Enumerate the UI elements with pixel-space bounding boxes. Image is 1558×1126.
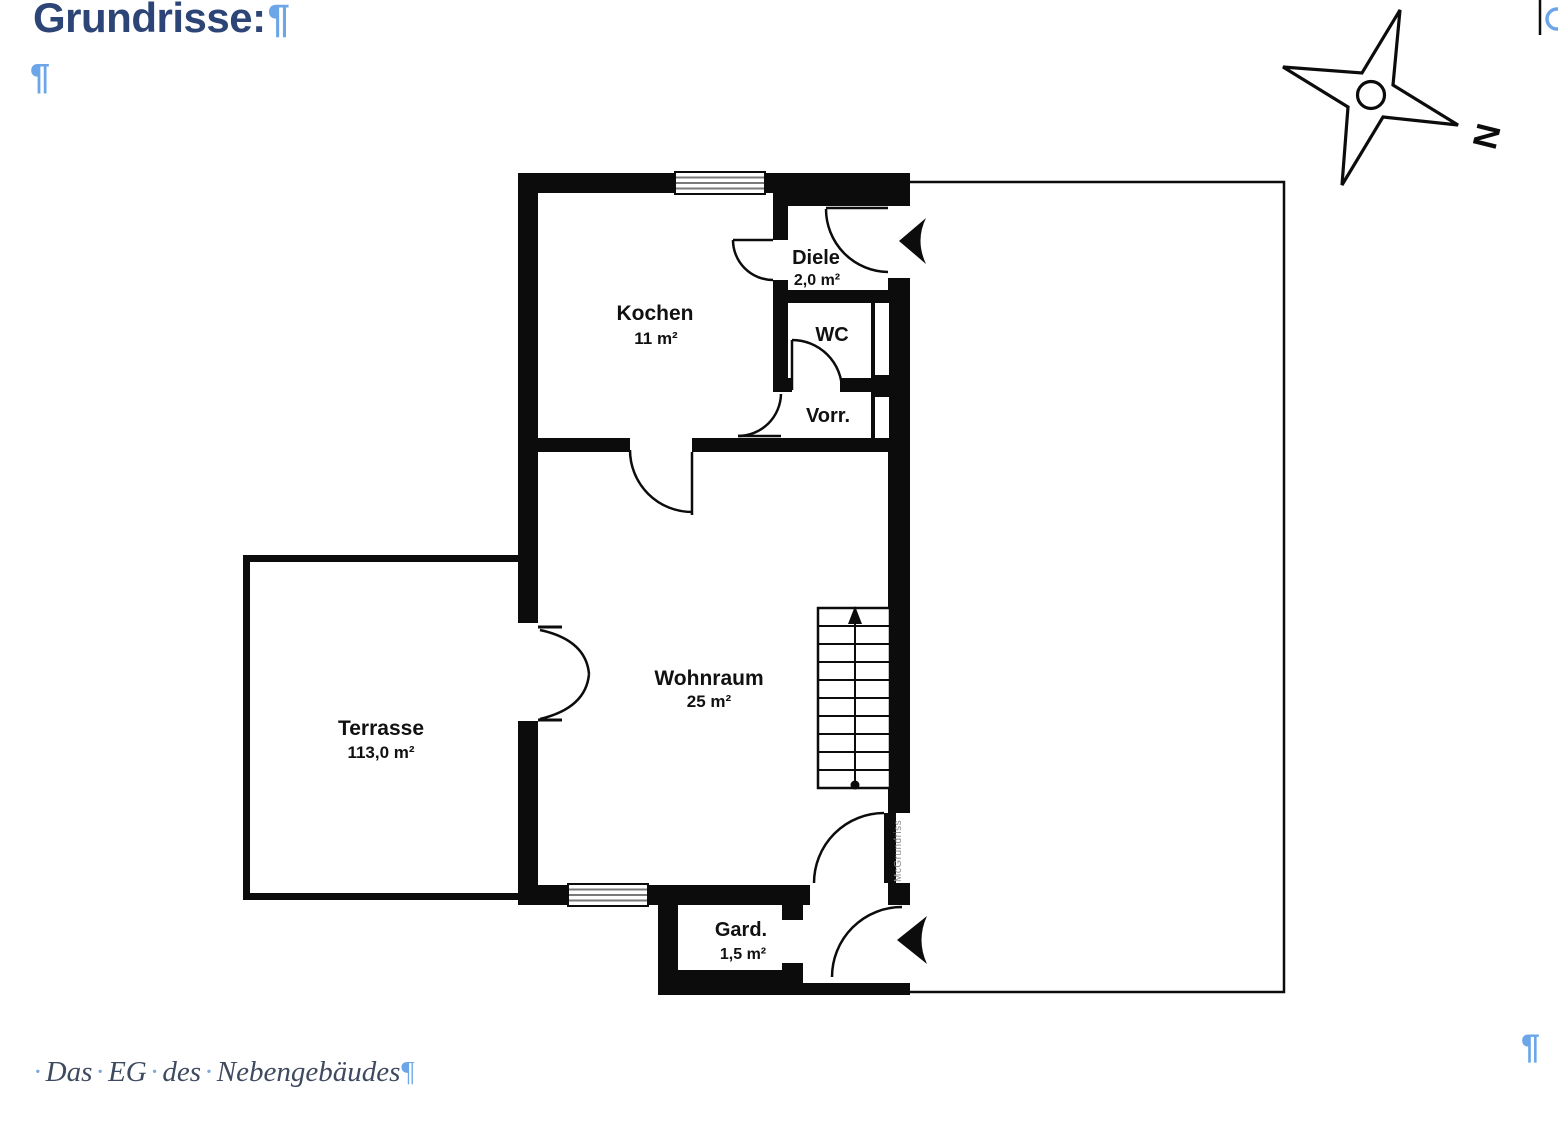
stairs-walk-start-dot <box>851 781 860 790</box>
entry-door-hall-arc <box>814 813 884 883</box>
wall-gard-right-top <box>782 905 803 920</box>
figure-caption: ·Das·EG·des·Nebengebäudes¶ <box>30 1056 415 1089</box>
wall-top-left <box>518 173 675 193</box>
floor-plan-figure: McGrundriss Kochen 11 m² Diele 2,0 m² WC… <box>0 0 1558 1126</box>
entrance-arrow-top <box>899 218 926 264</box>
entrance-arrow-bottom <box>897 916 927 964</box>
shaft-niche-vorr <box>875 397 889 438</box>
caption-word: des <box>162 1056 201 1088</box>
wall-diele-top-band <box>773 192 888 206</box>
entry-door-porch-arc <box>832 907 902 977</box>
shaft-niche-wc <box>875 303 889 375</box>
vorr-door-arc <box>738 394 781 436</box>
wall-gard-right-bottom <box>782 963 803 988</box>
wall-left-upper <box>518 173 538 623</box>
room-area-gard: 1,5 m² <box>720 946 766 963</box>
text-cursor-mark <box>1540 0 1558 35</box>
wall-right-stub <box>888 883 910 905</box>
room-label-terrasse: Terrasse <box>338 717 424 740</box>
caption-word: Das <box>46 1056 93 1088</box>
space-dot-mark: · <box>92 1056 108 1088</box>
room-area-diele: 2,0 m² <box>794 272 840 289</box>
document-page: Grundrisse: ¶ ¶ <box>0 0 1558 1126</box>
pilcrow-mark: ¶ <box>400 1056 414 1088</box>
room-area-wohnraum: 25 m² <box>687 692 732 711</box>
wall-wc-bottom-left <box>773 378 792 392</box>
wall-gard-bottom <box>658 970 803 983</box>
compass-rose-icon: N <box>1283 10 1507 185</box>
caption-word: Nebengebäudes <box>217 1056 401 1088</box>
wall-right-main <box>888 278 910 813</box>
space-dot-mark: · <box>147 1056 163 1088</box>
walls <box>518 173 910 995</box>
wall-wc-left <box>773 303 788 378</box>
room-label-gard: Gard. <box>715 919 767 941</box>
room-label-wohnraum: Wohnraum <box>654 667 763 690</box>
caption-word: EG <box>108 1056 147 1088</box>
plan-watermark: McGrundriss <box>893 820 904 882</box>
wall-vorr-bottom <box>692 438 873 452</box>
room-label-wc: WC <box>815 324 848 346</box>
compass-north-label: N <box>1465 120 1508 153</box>
wall-diele-bottom <box>773 290 888 303</box>
wall-kochen-bottom <box>538 438 630 452</box>
space-dot-mark: · <box>30 1056 46 1088</box>
terrace-door-threshold <box>538 627 562 720</box>
wall-bottom-left <box>518 885 568 905</box>
room-area-terrasse: 113,0 m² <box>347 743 414 762</box>
wc-door-arc <box>792 340 842 390</box>
window-wohnraum <box>568 884 648 906</box>
property-boundary-line <box>910 182 1284 992</box>
kochen-door-arc <box>630 450 692 512</box>
window-kochen <box>675 172 765 194</box>
wall-top-right-corner <box>888 193 910 206</box>
wall-top-right <box>765 173 910 193</box>
room-label-diele: Diele <box>792 247 840 269</box>
room-label-vorr: Vorr. <box>806 405 850 427</box>
wall-wc-bottom-right <box>840 378 873 392</box>
diele-kochen-door-arc <box>733 240 773 280</box>
space-dot-mark: · <box>201 1056 217 1088</box>
wall-left-lower <box>518 721 538 905</box>
room-label-kochen: Kochen <box>616 302 693 325</box>
pilcrow-mark: ¶ <box>1521 1028 1540 1067</box>
wall-bottom-mid <box>648 885 810 905</box>
terrace-french-door <box>540 630 589 719</box>
wall-diele-divider-stub <box>773 280 788 290</box>
room-area-kochen: 11 m² <box>634 329 678 348</box>
stairs <box>818 606 890 790</box>
wall-kochen-diele-divider <box>773 206 788 240</box>
